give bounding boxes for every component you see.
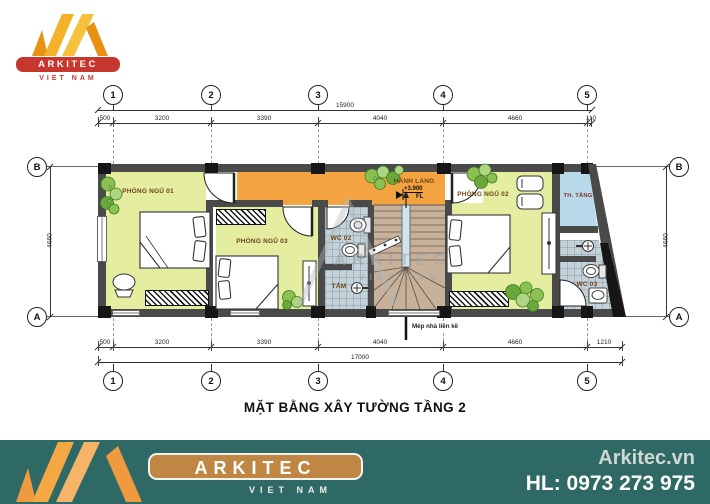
footer-hotline: HL: 0973 273 975	[455, 472, 695, 496]
level-suffix: FL	[416, 194, 423, 200]
dim-bottom-total: 17000	[330, 354, 390, 361]
label-bedroom1: PHÒNG NGỦ 01	[108, 188, 188, 196]
wardrobe-bedroom3	[216, 209, 266, 225]
logo-country: VIET NAM	[16, 75, 120, 82]
grid-bubble-a-left: A	[27, 307, 47, 327]
grid-bubble-1-bottom: 1	[103, 371, 123, 391]
wardrobe-bedroom1	[145, 290, 209, 306]
dim-left-height: 4660	[47, 226, 54, 256]
label-wc2: WC 02	[326, 235, 356, 243]
logo-brand-box: ARKITEC	[16, 57, 120, 72]
room-void-floor	[560, 172, 598, 233]
footer-bar: ARKITEC VIET NAM Arkitec.vn HL: 0973 273…	[0, 440, 710, 504]
room-wc3-floor	[560, 240, 612, 309]
window-bottom-1	[112, 310, 140, 316]
window-left-wall	[97, 216, 107, 262]
dim-bot-2: 3390	[249, 339, 279, 346]
label-wc3: WC 03	[571, 281, 603, 289]
footer-monogram-icon	[14, 442, 164, 504]
arkitec-logo: ARKITEC VIET NAM	[12, 14, 124, 86]
arkitec-monogram-icon	[30, 14, 110, 56]
label-void: TH. TẦNG	[558, 192, 598, 200]
dim-right-height: 4660	[663, 226, 670, 256]
dim-line-top-segments	[98, 123, 592, 124]
label-corridor: HÀNH LANG	[386, 178, 442, 186]
floorplan-page: ARKITEC VIET NAM 1 2 3 4 5 15900 500 320…	[0, 0, 710, 504]
dim-bot-1: 3200	[147, 339, 177, 346]
dim-bot-5: 1210	[591, 339, 617, 346]
footer-website: Arkitec.vn	[480, 447, 695, 470]
dim-top-2: 3390	[249, 115, 279, 122]
grid-bubble-2-top: 2	[201, 85, 221, 105]
window-bottom-2	[230, 310, 260, 316]
grid-bubble-1-top: 1	[103, 85, 123, 105]
grid-bubble-4-top: 4	[433, 85, 453, 105]
grid-bubble-5-top: 5	[577, 85, 597, 105]
label-bedroom3: PHÒNG NGỦ 03	[222, 238, 302, 246]
level-value: +3.900	[404, 186, 423, 193]
label-bedroom2: PHÒNG NGỦ 02	[443, 191, 523, 199]
dim-top-4: 4660	[500, 115, 530, 122]
wall-bottom	[98, 309, 622, 317]
footer-country: VIET NAM	[218, 485, 363, 495]
wall-corridor-a	[213, 200, 283, 207]
watermark-brand: ARKITEC	[320, 250, 465, 270]
window-bottom-3	[388, 310, 440, 316]
wall-void-wc3	[560, 226, 598, 233]
drawing-title: MẶT BẰNG XÂY TƯỜNG TẦNG 2	[155, 400, 555, 415]
wall-wc3-partition	[560, 256, 596, 262]
dim-line-bottom-total	[98, 362, 622, 363]
wardrobe-bedroom2	[449, 291, 509, 307]
wall-corridor-b	[312, 200, 328, 207]
grid-bubble-4-bottom: 4	[433, 371, 453, 391]
adjacent-note: Mép nhà liền kề	[410, 322, 460, 331]
grid-bubble-2-bottom: 2	[201, 371, 221, 391]
dim-bot-4: 4660	[500, 339, 530, 346]
wall-top	[98, 164, 592, 172]
footer-brand-box: ARKITEC	[148, 453, 363, 480]
label-bath: TẮM	[326, 283, 352, 291]
grid-bubble-5-bottom: 5	[577, 371, 597, 391]
dim-line-top-total	[98, 110, 592, 111]
dim-top-3: 4040	[365, 115, 395, 122]
dim-top-total: 15900	[315, 102, 375, 109]
grid-bubble-a-right: A	[669, 307, 689, 327]
dim-line-bottom-segments	[98, 347, 622, 348]
grid-bubble-b-right: B	[669, 157, 689, 177]
dim-top-1: 3200	[147, 115, 177, 122]
watermark-country: VIET NAM	[340, 272, 460, 282]
grid-bubble-3-bottom: 3	[308, 371, 328, 391]
grid-bubble-b-left: B	[27, 157, 47, 177]
dim-bot-3: 4040	[365, 339, 395, 346]
